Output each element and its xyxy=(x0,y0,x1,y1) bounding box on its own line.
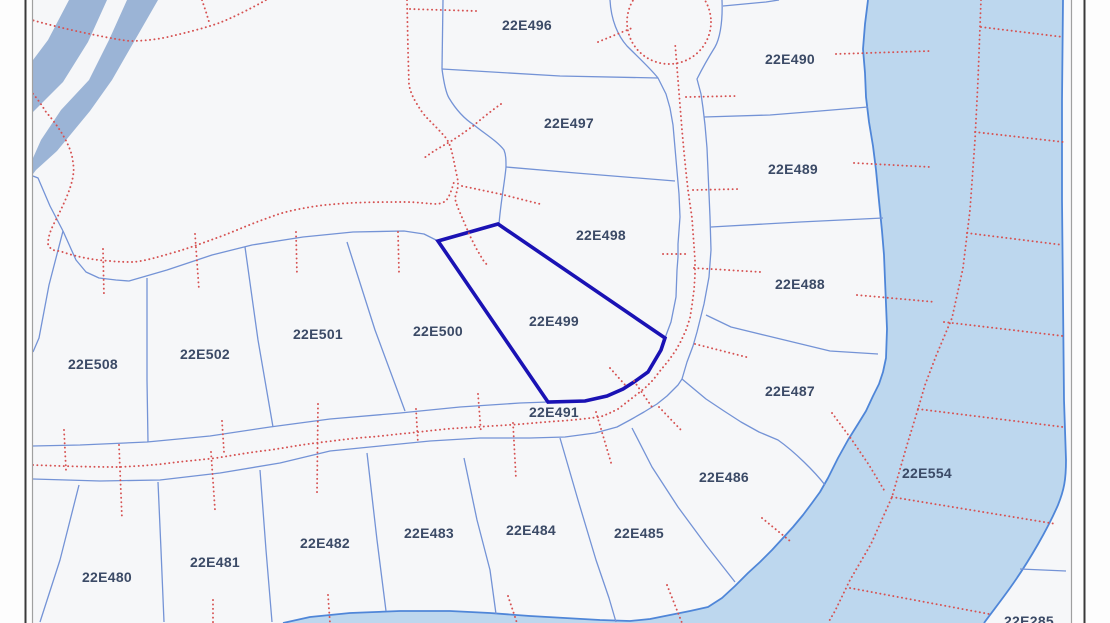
svg-text:22E500: 22E500 xyxy=(413,323,463,339)
svg-text:22E481: 22E481 xyxy=(190,554,240,570)
svg-text:22E483: 22E483 xyxy=(404,525,454,541)
svg-text:22E488: 22E488 xyxy=(775,276,825,292)
svg-text:22E501: 22E501 xyxy=(293,326,343,342)
svg-text:22E285: 22E285 xyxy=(1004,613,1054,623)
svg-text:22E497: 22E497 xyxy=(544,115,594,131)
svg-text:22E482: 22E482 xyxy=(300,535,350,551)
svg-text:22E487: 22E487 xyxy=(765,383,815,399)
svg-text:22E502: 22E502 xyxy=(180,346,230,362)
svg-text:22E496: 22E496 xyxy=(502,17,552,33)
svg-text:22E498: 22E498 xyxy=(576,227,626,243)
svg-text:22E489: 22E489 xyxy=(768,161,818,177)
svg-text:22E484: 22E484 xyxy=(506,522,556,538)
svg-text:22E554: 22E554 xyxy=(902,465,952,481)
svg-text:22E499: 22E499 xyxy=(529,313,579,329)
svg-text:22E486: 22E486 xyxy=(699,469,749,485)
svg-text:22E491: 22E491 xyxy=(529,404,579,420)
svg-text:22E508: 22E508 xyxy=(68,356,118,372)
svg-text:22E480: 22E480 xyxy=(82,569,132,585)
svg-text:22E485: 22E485 xyxy=(614,525,664,541)
svg-text:22E490: 22E490 xyxy=(765,51,815,67)
